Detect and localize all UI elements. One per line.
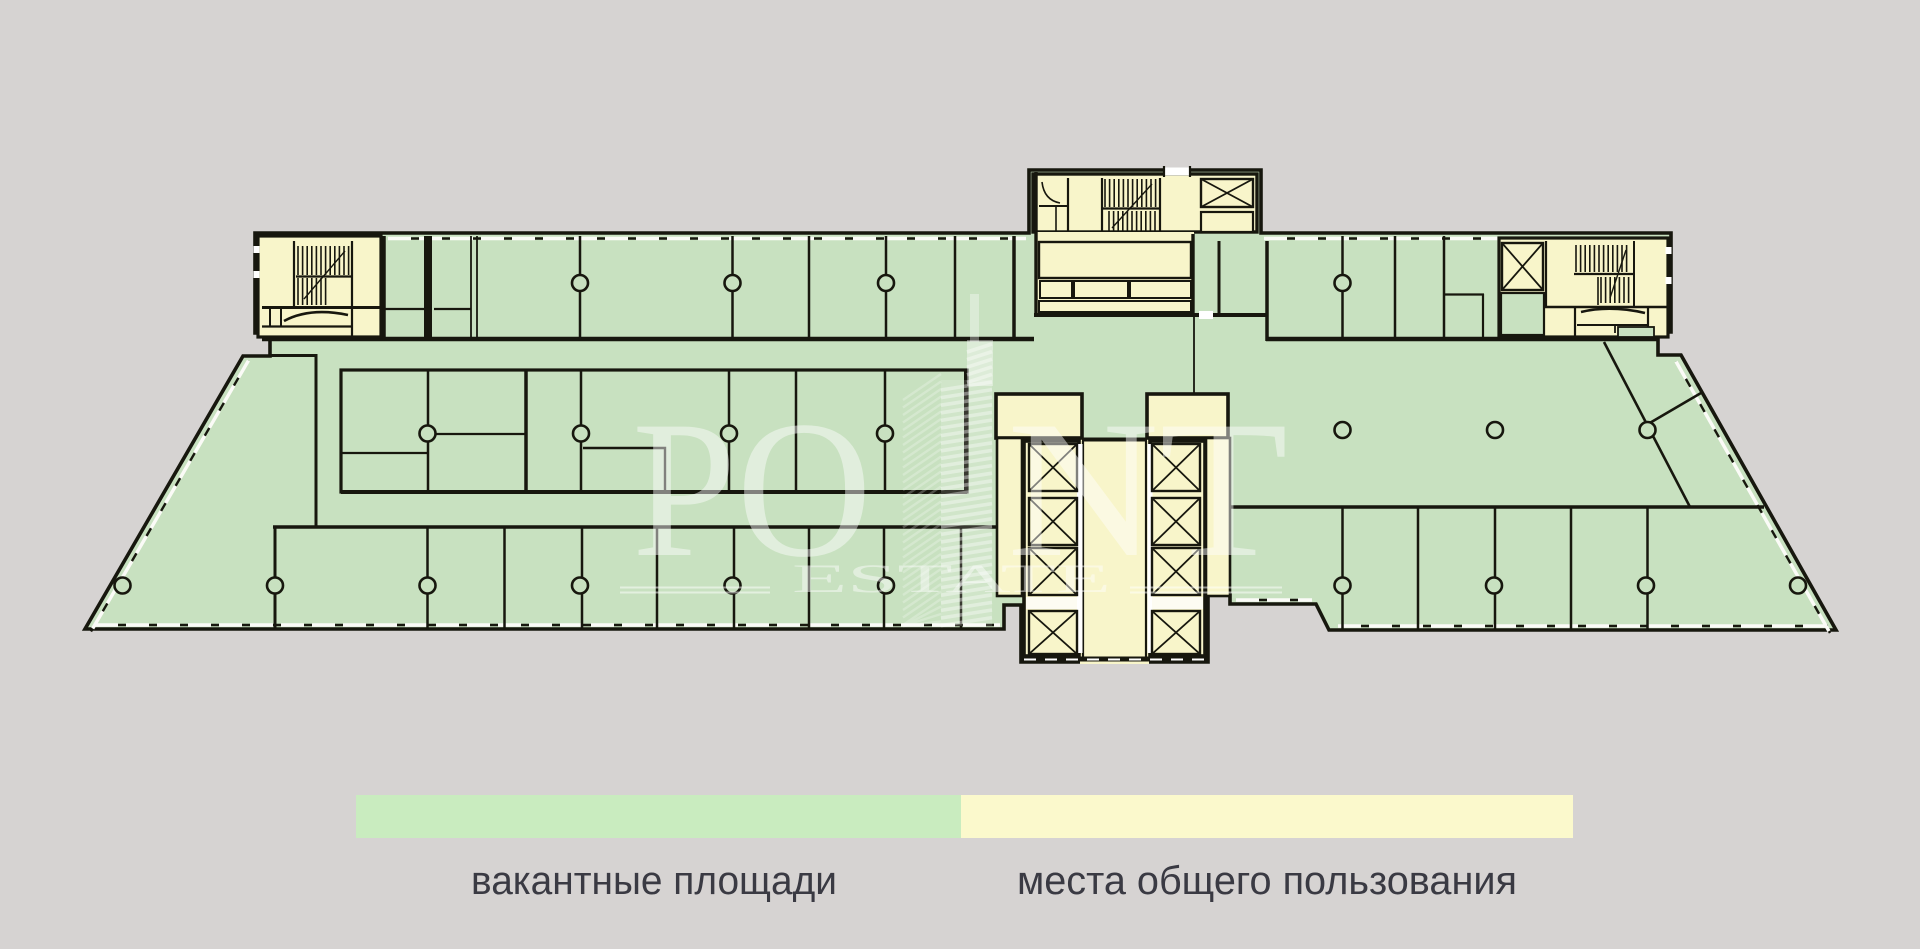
svg-text:ESTATE: ESTATE: [792, 556, 1111, 601]
svg-text:места общего пользования: места общего пользования: [1017, 859, 1517, 903]
svg-text:вакантные площади: вакантные площади: [471, 859, 837, 903]
